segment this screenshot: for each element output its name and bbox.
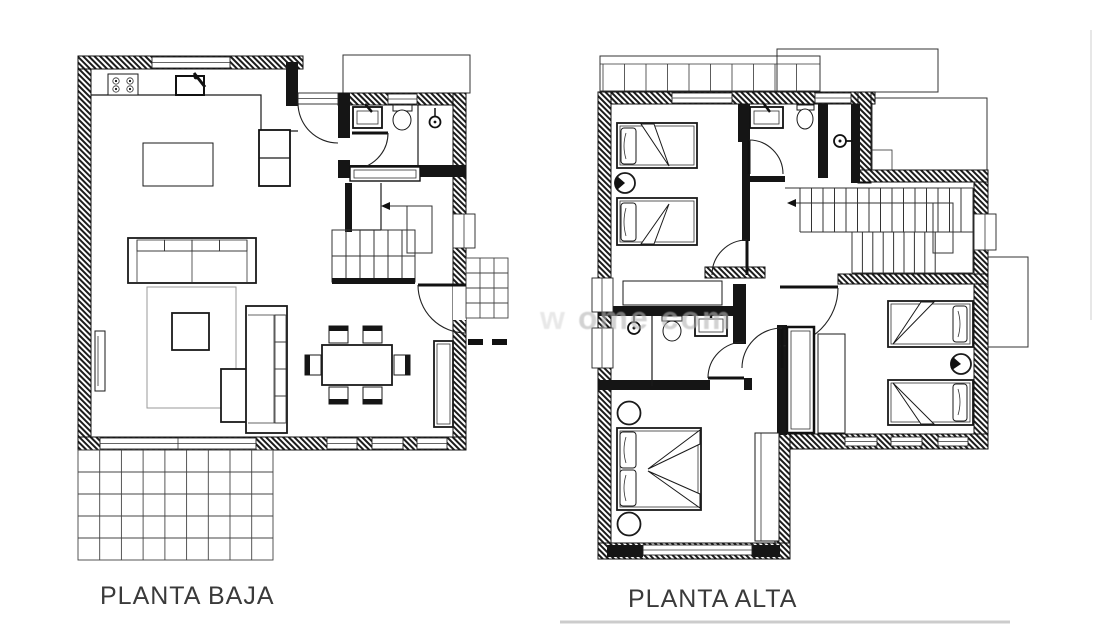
master-bedroom — [617, 328, 782, 541]
floor-plan-planta-alta — [592, 30, 1091, 559]
floorplan-sheet: PLANTA BAJA PLANTA ALTA w ome com — [0, 0, 1110, 626]
bath-sink-icon — [353, 104, 382, 128]
floor-plan-planta-baja — [78, 55, 508, 560]
dining-chair — [394, 355, 410, 375]
bed-icon — [617, 198, 697, 245]
tall-cabinet — [259, 130, 290, 186]
side-terrace-outline — [988, 257, 1028, 347]
dining-chair — [363, 387, 382, 404]
wardrobe — [755, 433, 779, 541]
living-room — [95, 238, 287, 433]
bath-door-arc — [352, 133, 388, 169]
shower-icon — [834, 135, 853, 147]
dining-chair — [363, 326, 382, 343]
shower-icon — [430, 108, 441, 128]
kitchen — [91, 73, 338, 186]
bath-door-arc — [708, 342, 744, 378]
bath-sink-icon — [750, 104, 783, 128]
side-table — [618, 402, 641, 425]
dining-table — [322, 345, 392, 385]
toilet-icon — [393, 105, 412, 130]
bed-icon — [617, 123, 697, 168]
bathroom-upper — [749, 104, 853, 174]
kitchen-counter — [91, 95, 298, 131]
bath-door-arc — [749, 140, 783, 174]
wardrobe — [787, 327, 814, 433]
toilet-icon — [797, 105, 814, 129]
radiator — [95, 331, 105, 391]
clock-icon — [950, 354, 971, 374]
plan-label-planta-baja: PLANTA BAJA — [100, 582, 275, 611]
bedroom-twin-right — [780, 287, 973, 433]
terrace-tiles — [78, 450, 273, 560]
stairs-arrow-icon — [381, 202, 430, 210]
coffee-table — [172, 313, 209, 350]
chaise-sofa — [246, 306, 287, 433]
dining-chair — [305, 355, 321, 375]
clock-icon — [614, 173, 635, 193]
master-door-arc — [742, 328, 782, 368]
sofa — [128, 238, 256, 283]
sideboard — [434, 341, 453, 427]
porch-outline — [343, 55, 470, 93]
dining-area — [305, 326, 453, 427]
dining-chair — [329, 387, 348, 404]
bed-icon — [888, 380, 973, 425]
dining-chair — [329, 326, 348, 343]
double-bed-icon — [617, 428, 701, 510]
bath-shelf — [350, 167, 420, 181]
kitchen-island — [143, 143, 213, 186]
wardrobe — [818, 334, 845, 433]
roof-terrace-outline — [872, 98, 987, 170]
watermark-fragment: w — [540, 300, 567, 337]
plan-label-planta-alta: PLANTA ALTA — [628, 585, 797, 614]
stairs — [785, 188, 973, 273]
stairs-arrow-icon — [787, 199, 945, 207]
kitchen-sink-icon — [176, 73, 205, 95]
watermark-text: ome com — [578, 300, 732, 337]
stove-icon — [108, 74, 138, 95]
side-table — [618, 513, 641, 536]
kitchen-door-arc — [298, 103, 338, 143]
bed-icon — [888, 301, 973, 347]
